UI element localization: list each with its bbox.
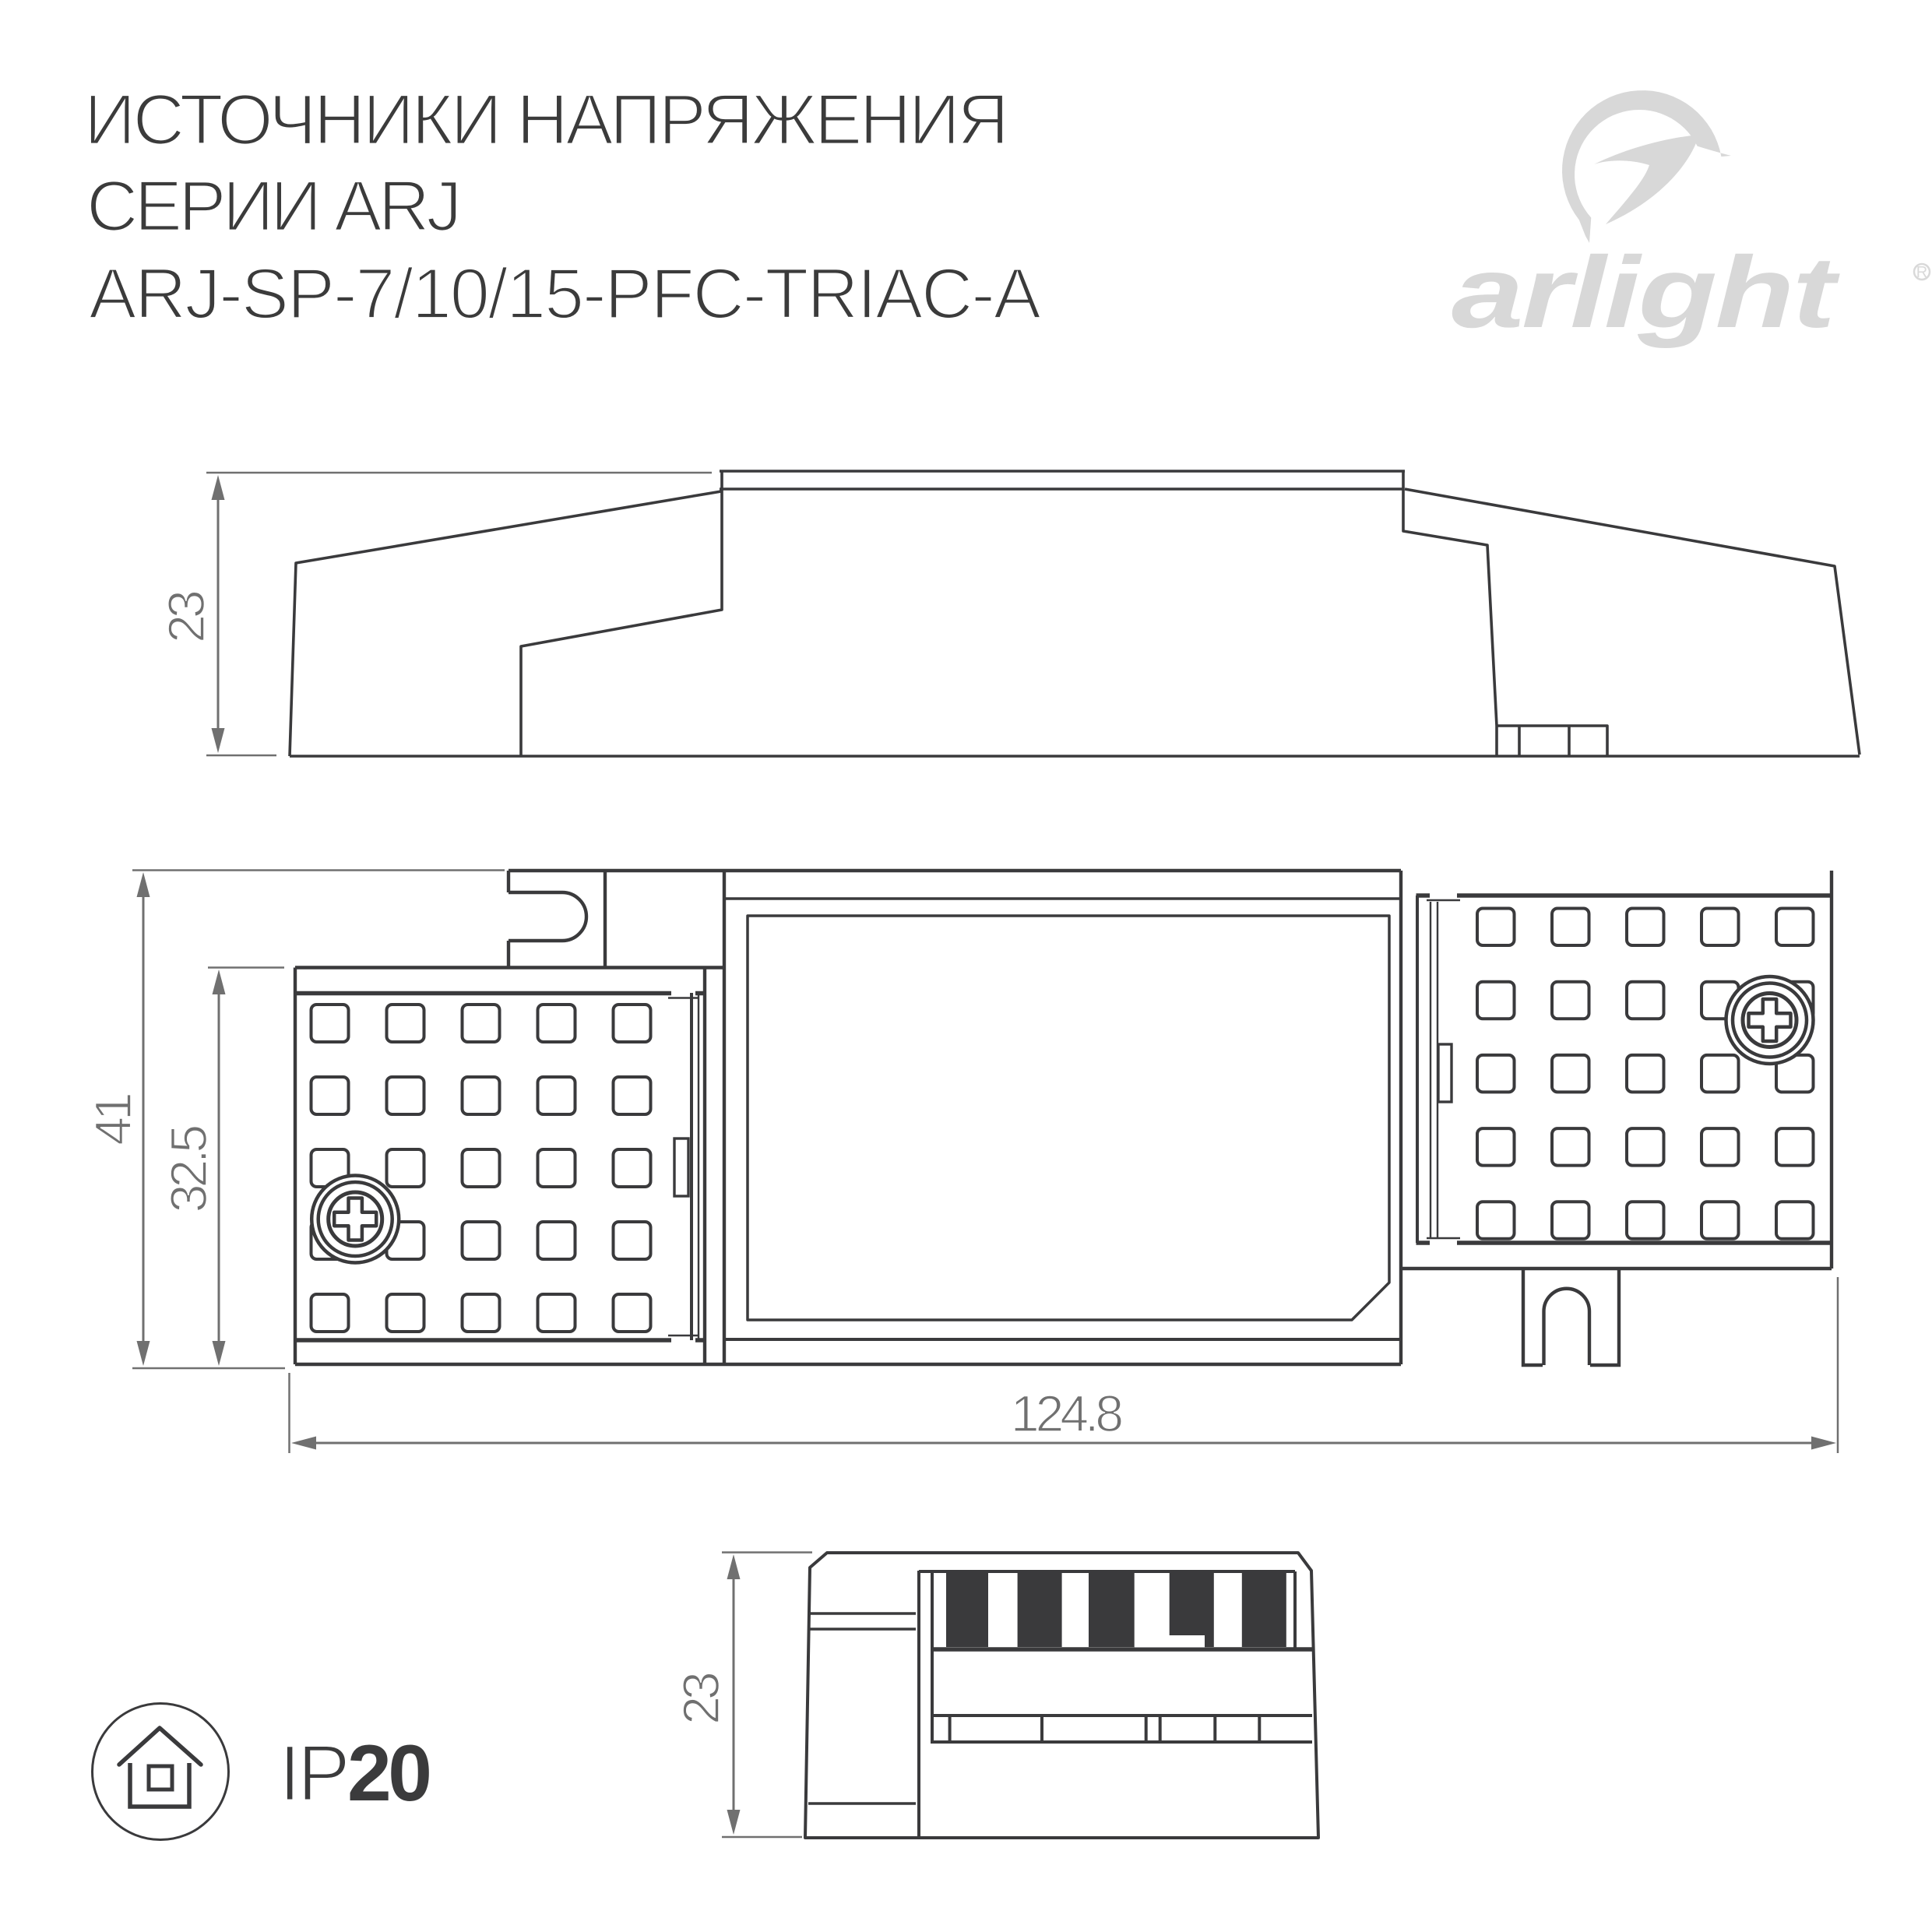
svg-text:СЕРИИ ARJ: СЕРИИ ARJ <box>86 167 459 246</box>
svg-text:41: 41 <box>84 1094 142 1145</box>
svg-text:arlight: arlight <box>1452 235 1840 348</box>
svg-text:23: 23 <box>157 592 215 643</box>
svg-text:IP: IP <box>279 1729 347 1818</box>
svg-text:ARJ-SP-7/10/15-PFC-TRIAC-A: ARJ-SP-7/10/15-PFC-TRIAC-A <box>89 255 1042 334</box>
svg-text:124.8: 124.8 <box>1011 1385 1121 1442</box>
svg-text:ИСТОЧНИКИ НАПРЯЖЕНИЯ: ИСТОЧНИКИ НАПРЯЖЕНИЯ <box>84 80 1006 160</box>
svg-text:R: R <box>1916 264 1927 281</box>
svg-text:23: 23 <box>672 1673 730 1725</box>
svg-text:20: 20 <box>347 1729 429 1818</box>
svg-text:32.5: 32.5 <box>160 1126 217 1212</box>
